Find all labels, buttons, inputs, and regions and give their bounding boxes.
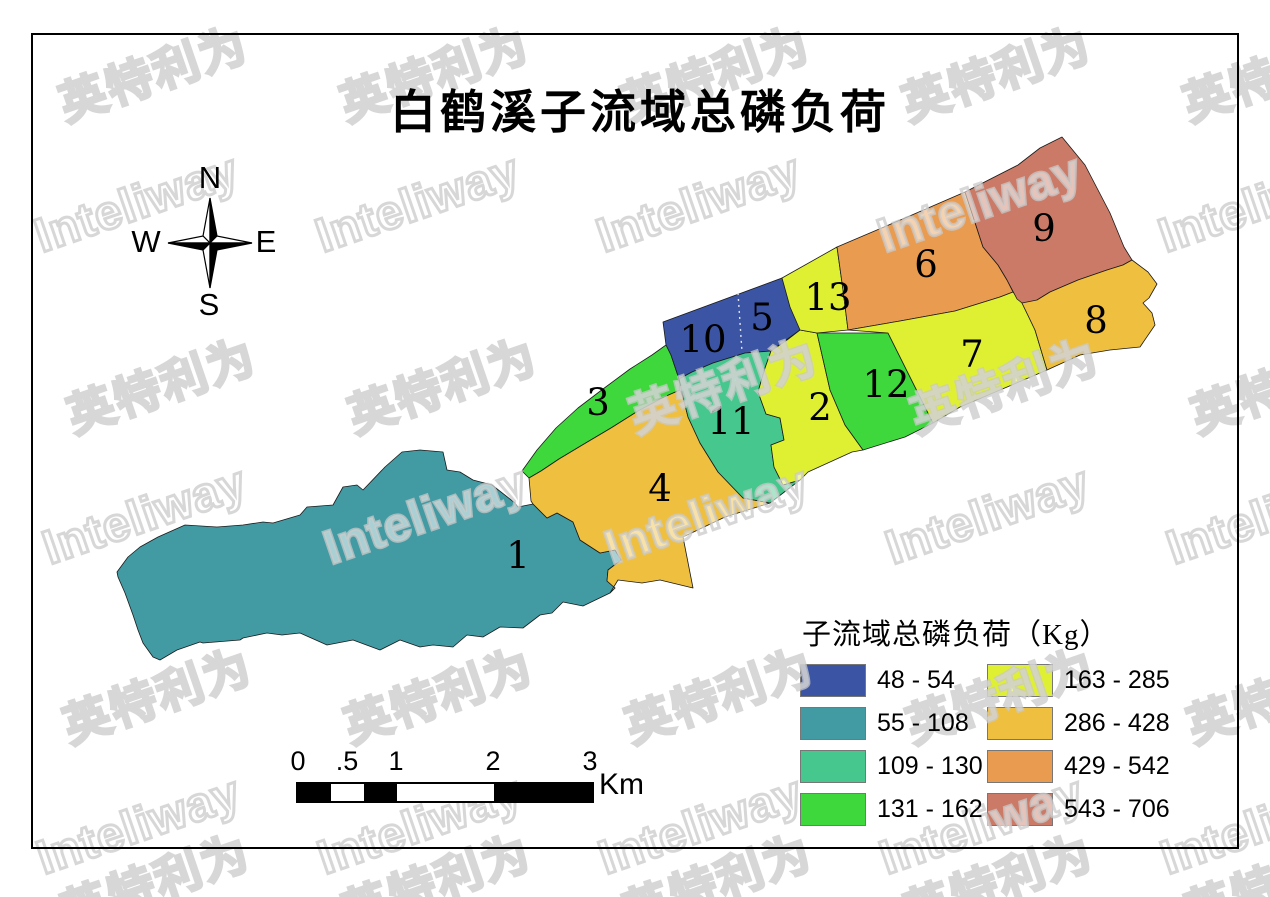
scale-tick-label: 0 [290, 746, 305, 777]
map-document: 13451011212136798 英特利为英特利为英特利为英特利为英特利为In… [0, 0, 1270, 897]
legend-label: 163 - 285 [1064, 664, 1170, 697]
legend-label: 286 - 428 [1064, 707, 1170, 740]
legend-label: 55 - 108 [877, 707, 969, 740]
scale-tick-label: 1 [388, 746, 403, 777]
region-number-label-4: 4 [648, 467, 672, 510]
scale-segment [364, 784, 397, 801]
legend-label: 48 - 54 [877, 664, 955, 697]
scale-segment [331, 784, 364, 801]
compass-north-label: N [199, 160, 221, 196]
region-number-label-13: 13 [804, 276, 851, 319]
page-title: 白鹤溪子流域总磷负荷 [390, 76, 890, 142]
region-number-label-2: 2 [808, 386, 832, 429]
scale-unit-label: Km [599, 768, 644, 802]
scale-bar [296, 782, 594, 803]
legend-label: 429 - 542 [1064, 750, 1170, 783]
scale-tick-label: 3 [582, 746, 597, 777]
legend-title: 子流域总磷负荷（Kg） [802, 611, 1109, 653]
scale-segment [298, 784, 331, 801]
region-number-label-6: 6 [914, 243, 938, 286]
compass-west-label: W [131, 224, 160, 260]
region-number-label-12: 12 [862, 363, 909, 406]
region-number-label-3: 3 [586, 381, 610, 424]
region-number-label-7: 7 [960, 333, 984, 376]
region-number-label-10: 10 [679, 318, 726, 361]
compass-south-label: S [199, 287, 220, 323]
legend-label: 131 - 162 [877, 793, 983, 826]
legend-label: 109 - 130 [877, 750, 983, 783]
scale-segment [494, 784, 592, 801]
scale-segment [397, 784, 494, 801]
legend-label: 543 - 706 [1064, 793, 1170, 826]
region-number-label-1: 1 [506, 534, 530, 577]
scale-tick-label: .5 [336, 746, 359, 777]
regions-group: 13451011212136798 [117, 137, 1157, 660]
region-number-label-9: 9 [1032, 207, 1056, 250]
region-number-label-5: 5 [750, 296, 774, 339]
region-number-label-8: 8 [1084, 299, 1108, 342]
scale-tick-label: 2 [485, 746, 500, 777]
region-number-label-11: 11 [707, 400, 754, 443]
compass-east-label: E [256, 224, 277, 260]
compass-rose-icon [168, 198, 252, 288]
